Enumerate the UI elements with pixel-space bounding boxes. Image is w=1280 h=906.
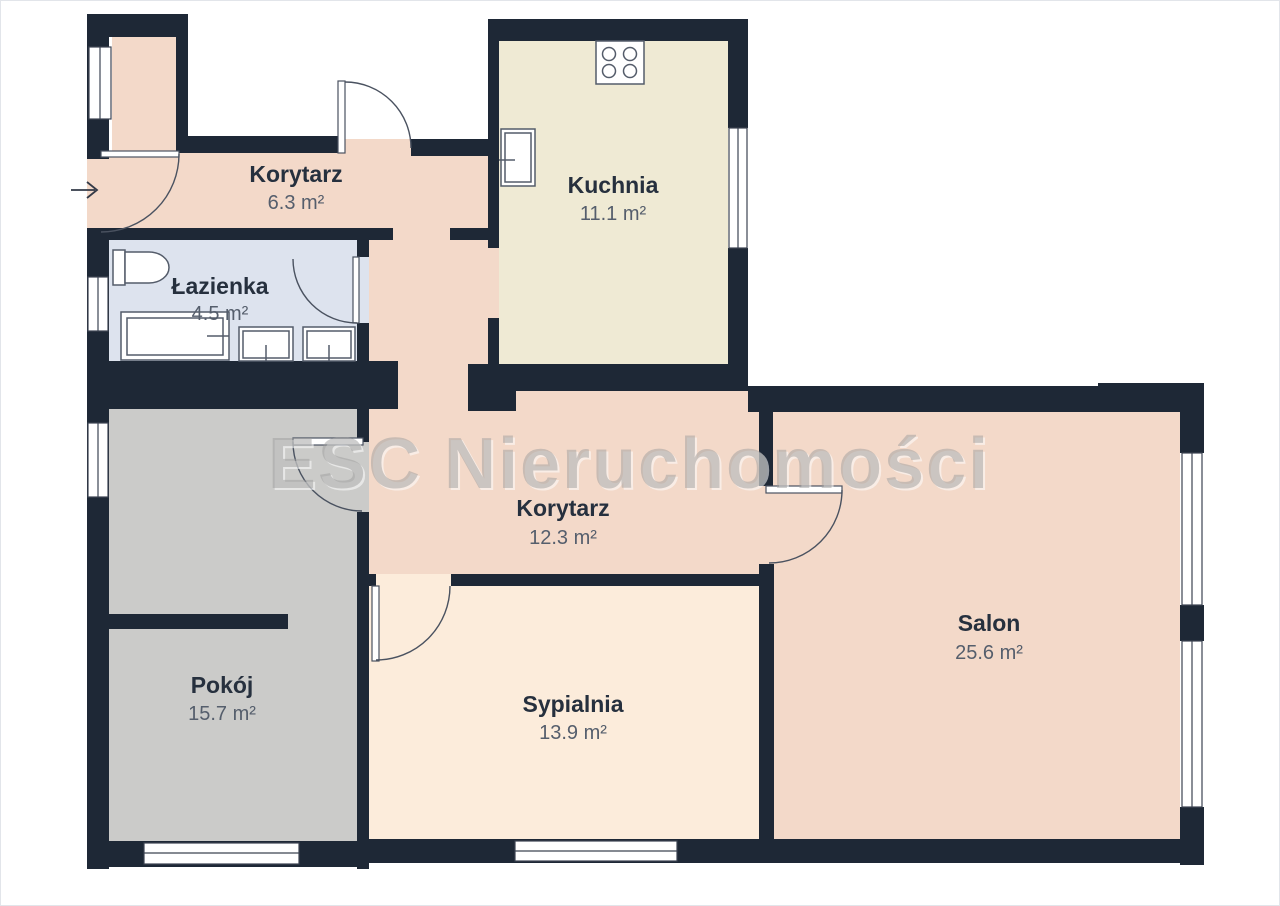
wall [357,240,369,257]
room-name-label: Pokój [191,672,254,698]
sypialnia-doorway-floor [376,574,451,586]
korytarz-top-floor [112,37,176,153]
window [144,843,299,864]
room-area-label: 11.1 m² [580,203,647,225]
window [88,277,108,331]
wall [1180,386,1204,453]
window [88,423,108,497]
toilet-icon [113,250,169,285]
kitchen-sink-icon [499,129,535,186]
wall [357,512,369,869]
wall-partition [109,614,288,629]
room-area-label: 13.9 m² [539,722,607,744]
room-name-label: Korytarz [249,161,342,187]
wall [451,574,762,586]
room-area-label: 6.3 m² [268,192,325,214]
stove-icon [596,41,644,84]
wall [188,136,340,153]
watermark: ESC Nieruchomości ESC Nieruchomości [268,424,992,506]
wall [369,574,376,586]
wall [176,14,188,153]
room-name-label: Łazienka [171,273,268,299]
wall [759,564,774,841]
passage-floor [369,240,488,364]
room-area-label: 4.5 m² [192,303,249,325]
window [729,128,747,248]
wall [759,839,1204,863]
kitchen-doorway-floor [488,248,499,318]
window [1182,641,1202,807]
watermark-text: ESC Nieruchomości [268,424,990,504]
wall [357,323,369,364]
top-doorway-floor [340,139,411,155]
room-area-label: 25.6 m² [955,642,1023,664]
window [515,841,677,861]
wall [488,318,499,364]
floor-plan-svg: Korytarz 6.3 m² Kuchnia 11.1 m² Łazienka… [1,1,1280,906]
washing-machine-icon [239,327,293,361]
passage-floor [393,228,450,242]
wall [728,19,748,128]
wall [87,228,393,240]
room-name-label: Salon [958,610,1021,636]
window [89,47,111,119]
window [1182,453,1202,605]
passage-floor [398,364,468,411]
wall [488,19,748,41]
wall [468,364,516,411]
room-area-label: 12.3 m² [529,527,597,549]
room-area-label: 15.7 m² [188,703,256,725]
korytarz-middle-floor [516,391,748,411]
wall [87,361,398,409]
wall [488,19,499,248]
wall [411,139,499,156]
floor-plan-page: Korytarz 6.3 m² Kuchnia 11.1 m² Łazienka… [0,0,1280,906]
wall [1180,605,1204,641]
wall [450,228,499,240]
bathroom-sink-icon [303,327,355,361]
wall [87,14,188,37]
room-name-label: Kuchnia [568,172,659,198]
room-name-label: Sypialnia [523,691,624,717]
